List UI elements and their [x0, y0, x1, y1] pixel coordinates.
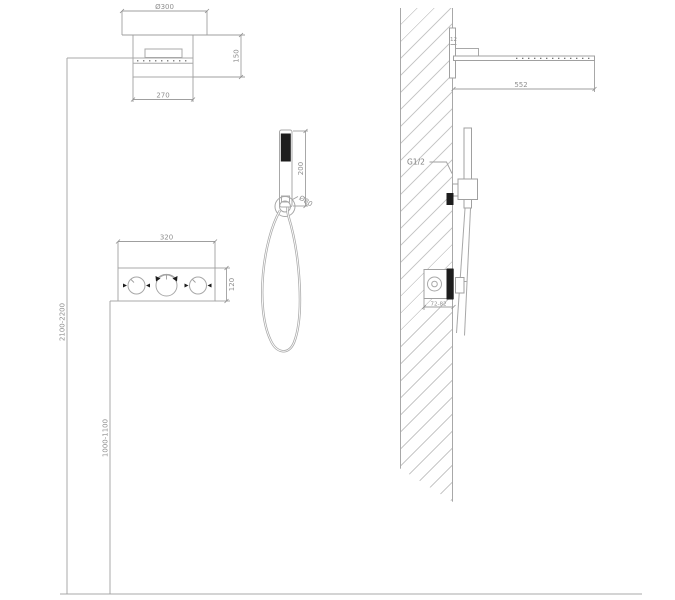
head-diameter-label: Ø300 [155, 3, 174, 11]
hand-shower-hose [262, 208, 300, 352]
hand-shower-head [281, 134, 291, 162]
valve-trim-plate [447, 269, 454, 300]
thread-size-label: G1/2 [407, 158, 425, 167]
hand-shower-front-view: 200 Ø80 [262, 129, 314, 351]
installation-drawing: 2100-2200 1000-1100 Ø300 [0, 0, 675, 600]
head-width-label: 270 [156, 92, 169, 100]
hand-shower-length-label: 200 [297, 162, 305, 175]
bracket-offset-label: 12 [450, 37, 457, 43]
control-panel-front-view: 320 120 [116, 234, 236, 304]
valve-side-view: 72-82 [422, 269, 467, 311]
panel-height-label: 120 [228, 278, 236, 291]
right-knob [185, 277, 212, 294]
valve-mount-height-label: 1000-1100 [102, 419, 110, 457]
panel-width-label: 320 [160, 234, 173, 242]
rain-head-front-view: Ø300 150 270 [67, 3, 245, 102]
left-knob [123, 277, 150, 294]
valve-height-dimension: 1000-1100 [102, 301, 119, 594]
shower-mount-height-label: 2100-2200 [59, 303, 67, 341]
head-depth-label: 552 [514, 81, 527, 89]
head-height-label: 150 [233, 49, 241, 62]
middle-knob [156, 274, 178, 296]
drawing-linework: 2100-2200 1000-1100 Ø300 [0, 0, 675, 600]
rain-head-side-view: 12 552 [450, 28, 597, 92]
valve-recess-depth-label: 72-82 [431, 302, 447, 308]
wall-outlet-elbow [447, 193, 454, 205]
shower-height-dimension: 2100-2200 [59, 58, 134, 594]
